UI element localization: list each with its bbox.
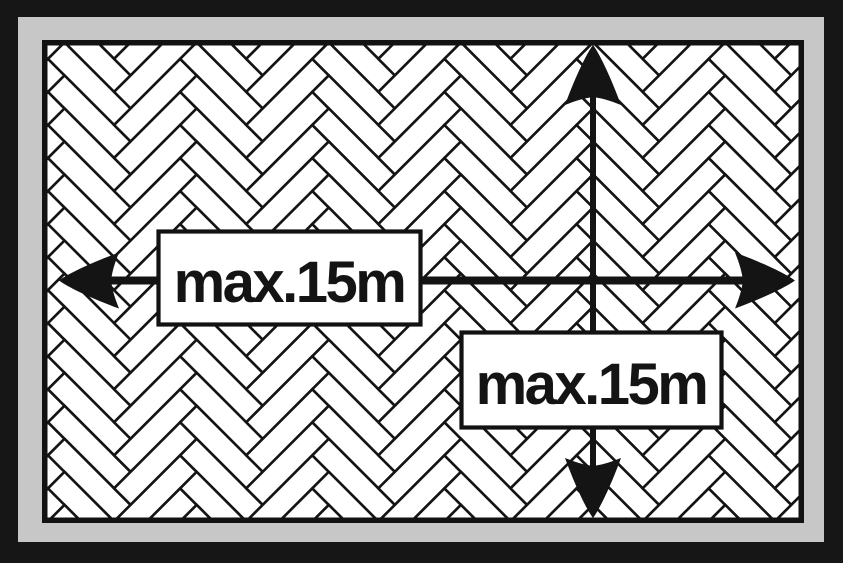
svg-text:max.15m: max.15m xyxy=(476,352,707,417)
svg-text:max.15m: max.15m xyxy=(174,250,405,315)
